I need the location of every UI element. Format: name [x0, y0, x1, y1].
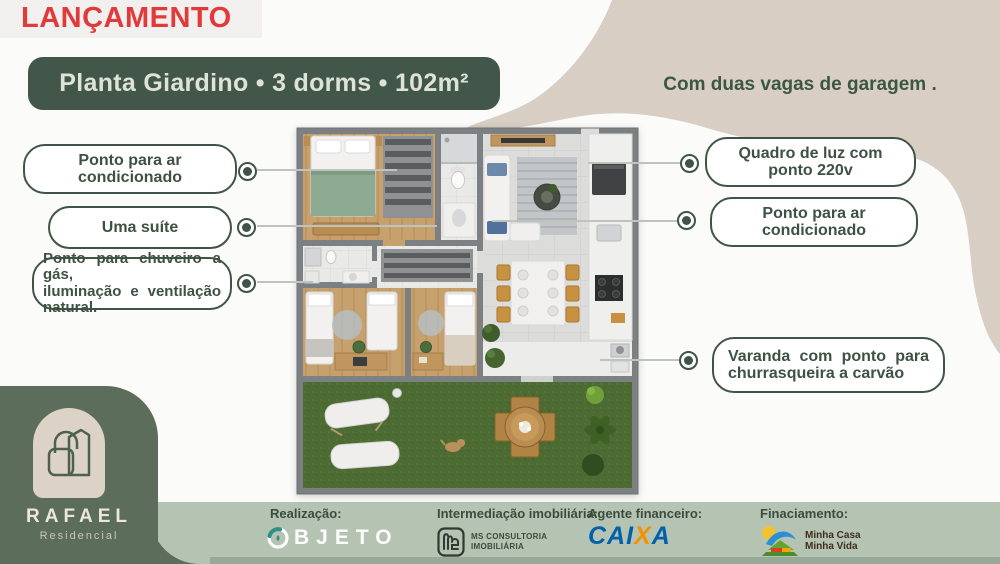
mcmv-icon [760, 524, 800, 558]
callout-quadro-luz: Quadro de luz com ponto 220v [705, 137, 916, 187]
callout-label: iluminação e ventilação [43, 284, 221, 300]
hall-wardrobe [381, 249, 473, 282]
callout-suite: Uma suíte [48, 206, 232, 249]
caixa-logo: CAIXA [588, 522, 671, 551]
callout-dot [677, 211, 696, 230]
callout-label: Quadro de luz com ponto 220v [717, 145, 904, 180]
ms-text-line2: IMOBILIÁRIA [471, 542, 547, 552]
objeto-logo: BJETO [266, 526, 399, 550]
connector-line [257, 169, 397, 171]
callout-label: Ponto para chuveiro a gás, [43, 251, 221, 283]
callout-label: Ponto para ar condicionado [722, 205, 906, 240]
intermediacao-label: Intermediação imobiliária: [437, 506, 598, 521]
caixa-x: X [634, 522, 652, 550]
connector-line [257, 281, 313, 283]
mcmv-text-line1: Minha Casa [805, 530, 861, 542]
plan-title: Planta Giardino • 3 dorms • 102m² [28, 57, 500, 110]
callout-ar-condicionado-right: Ponto para ar condicionado [710, 197, 918, 247]
caixa-text: CAI [588, 522, 634, 550]
callout-label: Ponto para ar condicionado [35, 152, 225, 187]
callout-label: Varanda com ponto para [728, 348, 929, 365]
caixa-text: A [652, 522, 671, 550]
floor-plan-image [295, 125, 640, 497]
callout-dot [237, 218, 256, 237]
callout-dot [680, 154, 699, 173]
mcmv-text: Minha Casa Minha Vida [805, 530, 861, 553]
ms-consultoria-icon [437, 527, 465, 557]
connector-line [600, 359, 680, 361]
rafael-arch-icon [33, 408, 105, 498]
flyer-page: LANÇAMENTO Planta Giardino • 3 dorms • 1… [0, 0, 1000, 564]
ms-text-line1: MS CONSULTORIA [471, 532, 547, 542]
callout-label: natural. [43, 300, 221, 316]
callout-dot [237, 274, 256, 293]
kitchen-furniture [589, 134, 632, 340]
agente-label: Agente financeiro: [588, 506, 702, 521]
mcmv-text-line2: Minha Vida [805, 541, 861, 553]
connector-line [492, 220, 678, 222]
connector-line [257, 225, 437, 227]
callout-label: churrasqueira a carvão [728, 365, 929, 382]
mcmv-logo: Minha Casa Minha Vida [760, 524, 861, 558]
ms-consultoria-logo: MS CONSULTORIA IMOBILIÁRIA [437, 527, 547, 557]
brand-subtitle: Residencial [0, 530, 158, 542]
callout-varanda: Varanda com ponto para churrasqueira a c… [712, 337, 945, 393]
callout-dot [679, 351, 698, 370]
callout-label: Uma suíte [102, 219, 178, 236]
objeto-o-icon [266, 526, 290, 550]
rafael-buildings-glyph [41, 417, 97, 489]
callout-chuveiro: Ponto para chuveiro a gás, iluminação e … [32, 257, 232, 310]
callout-ar-condicionado-left: Ponto para ar condicionado [23, 144, 237, 194]
brand-name: RAFAEL [0, 506, 158, 528]
garage-subtitle: Com duas vagas de garagem . [660, 74, 940, 96]
footer-bar-shadow [210, 557, 1000, 564]
realizacao-label: Realização: [270, 506, 342, 521]
connector-line [588, 162, 680, 164]
callout-dot [238, 162, 257, 181]
objeto-logo-text: BJETO [294, 526, 399, 550]
financiamento-label: Finaciamento: [760, 506, 848, 521]
ms-consultoria-text: MS CONSULTORIA IMOBILIÁRIA [471, 532, 547, 551]
